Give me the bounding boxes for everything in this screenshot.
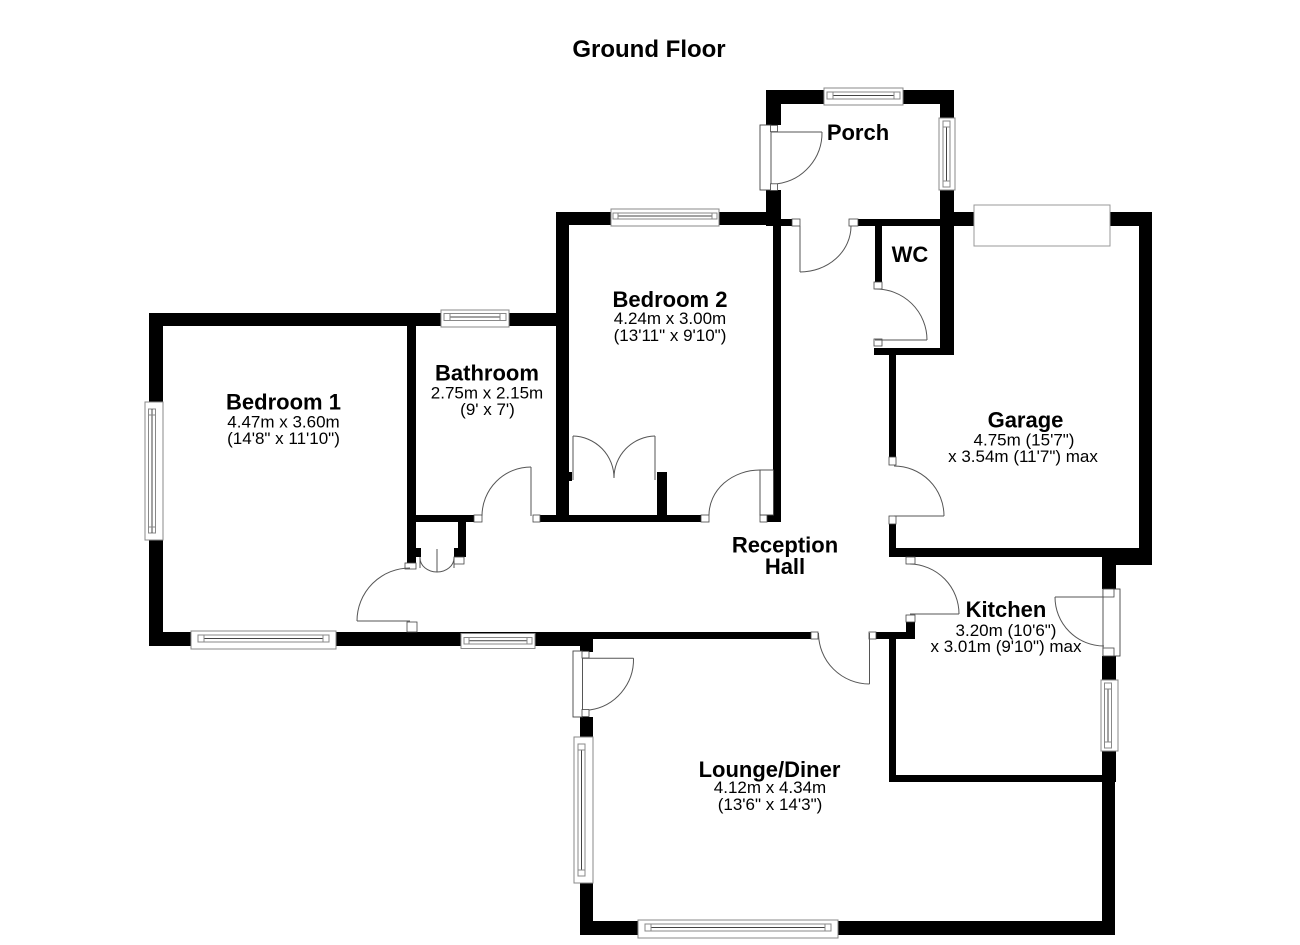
- svg-text:(13'11" x 9'10"): (13'11" x 9'10"): [614, 326, 727, 345]
- svg-text:Hall: Hall: [765, 554, 805, 579]
- svg-text:(13'6" x 14'3"): (13'6" x 14'3"): [718, 795, 823, 814]
- svg-text:Bathroom: Bathroom: [435, 361, 539, 386]
- svg-text:WC: WC: [892, 242, 929, 267]
- svg-text:Garage: Garage: [988, 408, 1064, 433]
- svg-text:Bedroom 1: Bedroom 1: [226, 390, 341, 415]
- svg-text:x 3.54m (11'7") max: x 3.54m (11'7") max: [948, 447, 1098, 466]
- svg-text:Kitchen: Kitchen: [966, 597, 1047, 622]
- svg-text:(9' x 7'): (9' x 7'): [460, 400, 515, 419]
- svg-text:x 3.01m (9'10") max: x 3.01m (9'10") max: [931, 637, 1082, 656]
- svg-text:(14'8" x 11'10"): (14'8" x 11'10"): [227, 429, 340, 448]
- svg-text:Porch: Porch: [827, 120, 889, 145]
- svg-text:Ground Floor: Ground Floor: [572, 36, 725, 63]
